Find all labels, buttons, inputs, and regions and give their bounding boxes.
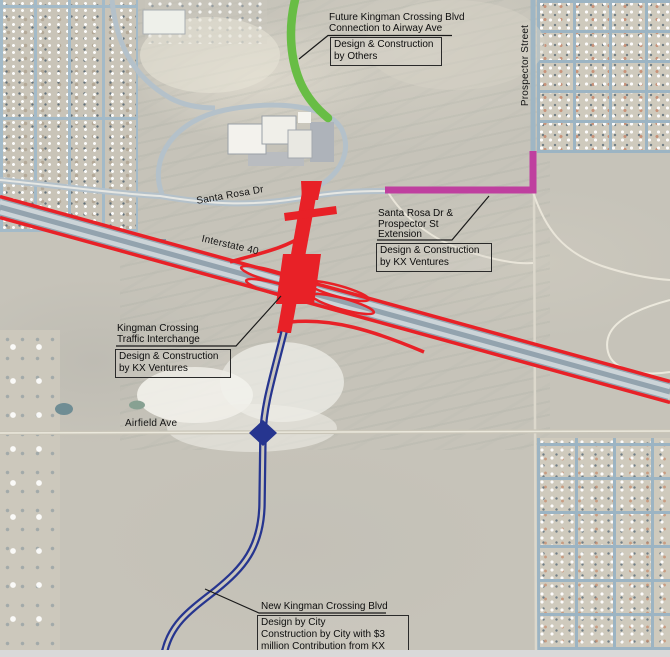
map-graphics	[0, 0, 670, 657]
extension-route-line	[385, 151, 533, 190]
annotation-new-blvd-title: New Kingman Crossing Blvd	[261, 601, 388, 612]
interchange-red-overlay	[276, 181, 337, 333]
light-terrain-patches	[137, 0, 545, 452]
annotation-interchange-box: Design & Construction by KX Ventures	[115, 349, 231, 378]
bottom-border-strip	[0, 650, 670, 657]
street-label-airfield-ave: Airfield Ave	[125, 418, 177, 429]
project-map: Prospector Street Santa Rosa Dr Intersta…	[0, 0, 670, 657]
annotation-future-connection-title: Future Kingman Crossing Blvd Connection …	[329, 12, 465, 34]
pond	[129, 401, 145, 410]
street-label-prospector: Prospector Street	[520, 18, 531, 113]
annotation-future-connection-box: Design & Construction by Others	[330, 37, 442, 66]
annotation-extension-box: Design & Construction by KX Ventures	[376, 243, 492, 272]
pond	[55, 403, 73, 415]
annotation-interchange-title: Kingman Crossing Traffic Interchange	[117, 323, 200, 345]
future-connection-route-line	[291, 0, 328, 118]
annotation-extension-title: Santa Rosa Dr & Prospector St Extension	[378, 209, 453, 241]
